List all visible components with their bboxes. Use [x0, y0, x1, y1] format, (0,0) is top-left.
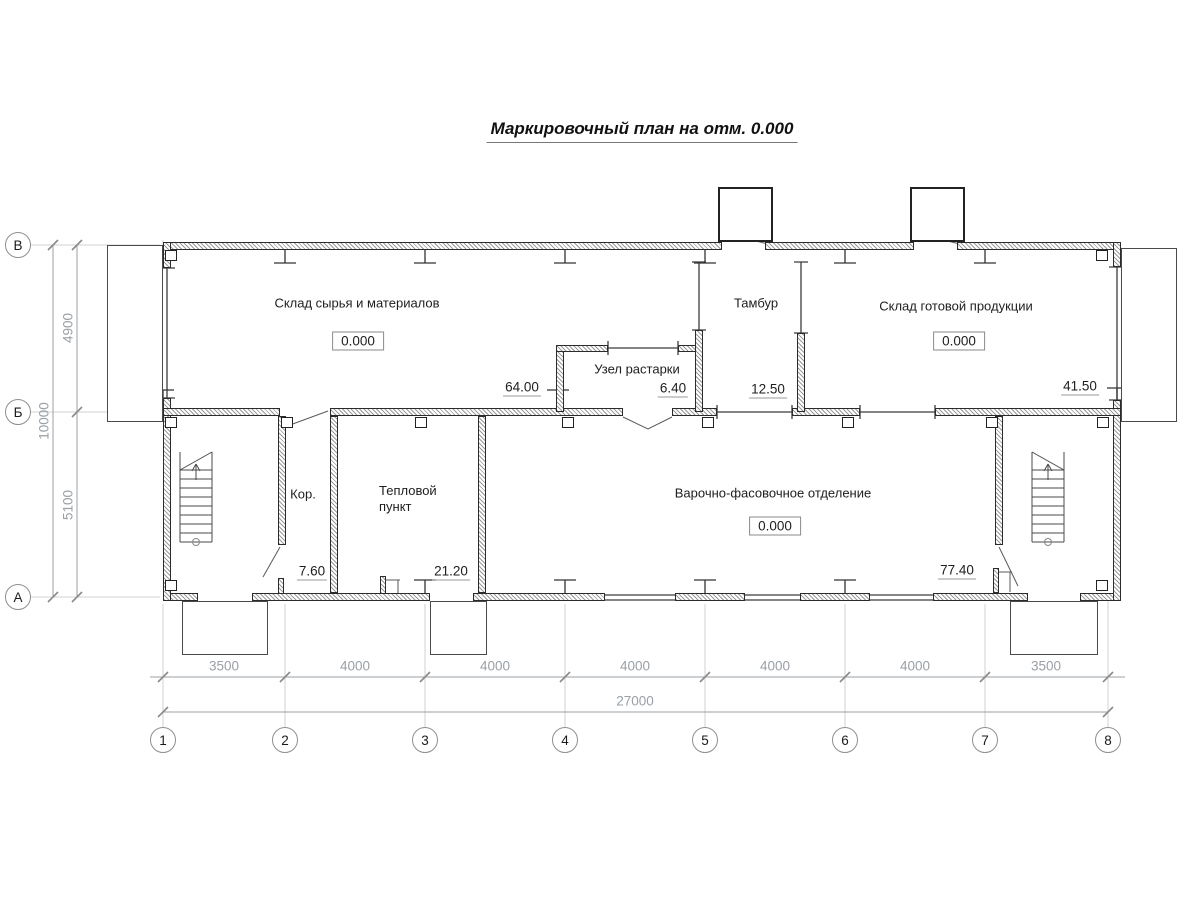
- loading-platform: [107, 245, 163, 422]
- grid-bubble-row-a: А: [5, 584, 31, 610]
- column-square: [415, 417, 427, 428]
- wall-segment: [933, 593, 1028, 601]
- entrance-stoop: [182, 601, 268, 655]
- wall-segment: [765, 242, 914, 250]
- column-square: [702, 417, 714, 428]
- column-square: [165, 580, 177, 591]
- room-label-unpacking: Узел растарки: [594, 362, 680, 377]
- wall-segment: [163, 398, 171, 601]
- wall-segment: [556, 345, 564, 412]
- grid-bubble-5: 5: [692, 727, 718, 753]
- wall-segment: [675, 593, 745, 601]
- grid-bubble-1: 1: [150, 727, 176, 753]
- room-area-cooking: 77.40: [938, 563, 976, 580]
- wall-segment: [695, 330, 703, 412]
- bay-dimension: 3500: [1028, 659, 1064, 674]
- room-area-unpacking: 6.40: [658, 381, 688, 398]
- wall-segment: [1113, 242, 1121, 267]
- room-area-finished-storage: 41.50: [1061, 379, 1099, 396]
- grid-bubble-6: 6: [832, 727, 858, 753]
- wall-segment: [800, 593, 870, 601]
- bay-dimension: 3500: [206, 659, 242, 674]
- room-area-corridor: 7.60: [297, 564, 327, 581]
- wall-segment: [163, 408, 280, 416]
- wall-segment: [993, 568, 999, 593]
- room-label-finished-storage: Склад готовой продукции: [879, 299, 1033, 314]
- column-square: [562, 417, 574, 428]
- stair-right: [1032, 452, 1064, 546]
- elevation-mark: 0.000: [933, 332, 985, 351]
- column-square: [1096, 580, 1108, 591]
- total-width-dimension: 27000: [613, 694, 657, 709]
- wall-segment: [797, 333, 805, 412]
- column-square: [165, 417, 177, 428]
- wall-segment: [478, 416, 486, 593]
- bay-dimension: 4000: [617, 659, 653, 674]
- stair-left: [180, 452, 212, 546]
- column-square: [1097, 417, 1109, 428]
- column-square: [165, 250, 177, 261]
- column-square: [281, 417, 293, 428]
- entrance-vestibule-box: [910, 187, 965, 242]
- room-label-vestibule: Тамбур: [734, 296, 778, 311]
- wall-segment: [995, 416, 1003, 545]
- entrance-vestibule-box: [718, 187, 773, 242]
- total-height-dimension: 10000: [37, 402, 52, 440]
- bay-dimension: 4000: [897, 659, 933, 674]
- room-label-cooking: Варочно-фасовочное отделение: [675, 486, 871, 501]
- room-label-corridor: Кор.: [290, 487, 316, 502]
- wall-segment: [380, 576, 386, 594]
- column-square: [842, 417, 854, 428]
- wall-segment: [252, 593, 430, 601]
- elevation-mark: 0.000: [749, 517, 801, 536]
- grid-bubble-4: 4: [552, 727, 578, 753]
- bay-dimension: 4000: [477, 659, 513, 674]
- room-area-vestibule: 12.50: [749, 382, 787, 399]
- bay-dimension: 4000: [337, 659, 373, 674]
- wall-segment: [330, 416, 338, 593]
- room-label-raw-storage: Склад сырья и материалов: [274, 296, 439, 311]
- wall-segment: [278, 416, 286, 545]
- column-square: [986, 417, 998, 428]
- wall-segment: [1113, 400, 1121, 601]
- grid-bubble-row-v: В: [5, 232, 31, 258]
- column-square: [1096, 250, 1108, 261]
- entrance-stoop: [1010, 601, 1098, 655]
- grid-bubble-8: 8: [1095, 727, 1121, 753]
- grid-bubble-row-b: Б: [5, 399, 31, 425]
- row-span-dimension: 4900: [61, 313, 76, 343]
- room-area-heat-point: 21.20: [432, 564, 470, 581]
- room-area-raw-storage: 64.00: [503, 380, 541, 397]
- wall-segment: [935, 408, 1121, 416]
- drawing-title: Маркировочный план на отм. 0.000: [487, 119, 798, 143]
- wall-segment: [473, 593, 605, 601]
- grid-bubble-7: 7: [972, 727, 998, 753]
- wall-segment: [957, 242, 1121, 250]
- room-label-heat-point: Тепловой пункт: [379, 483, 451, 514]
- bay-dimension: 4000: [757, 659, 793, 674]
- row-span-dimension: 5100: [61, 490, 76, 520]
- grid-bubble-3: 3: [412, 727, 438, 753]
- elevation-mark: 0.000: [332, 332, 384, 351]
- floor-plan-drawing: Маркировочный план на отм. 0.000: [0, 0, 1200, 900]
- wall-segment: [330, 408, 623, 416]
- entrance-stoop: [430, 601, 487, 655]
- grid-bubble-2: 2: [272, 727, 298, 753]
- wall-segment: [556, 345, 608, 352]
- wall-segment: [163, 242, 722, 250]
- wall-segment: [278, 578, 284, 594]
- loading-platform: [1121, 248, 1177, 422]
